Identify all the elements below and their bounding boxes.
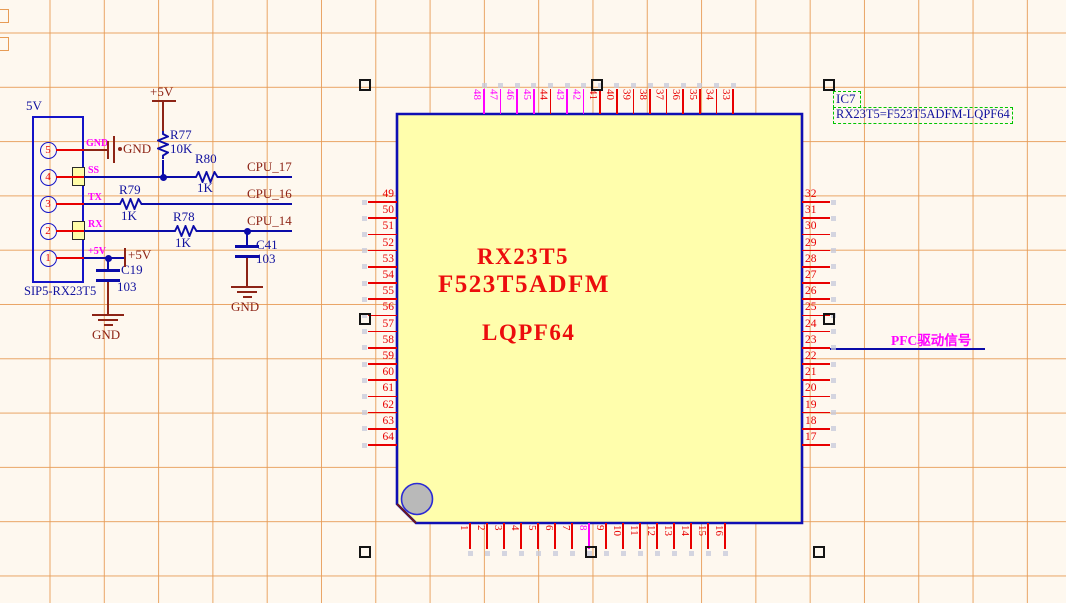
- ic-pin-number-56: 56: [368, 301, 394, 313]
- ic-pin-right-32[interactable]: [802, 201, 830, 203]
- ic-pin-number-20: 20: [805, 382, 817, 394]
- ic-pin-number-25: 25: [805, 301, 817, 313]
- ic-pin-number-16: 16: [712, 525, 725, 536]
- connector-pin-2[interactable]: 2: [40, 223, 57, 240]
- selection-handle-square[interactable]: [591, 79, 603, 91]
- ic-pin-top-46[interactable]: [516, 89, 518, 114]
- ic-body-text-line3: LQPF64: [482, 320, 575, 346]
- power-label-plus5v-top[interactable]: +5V: [150, 85, 173, 99]
- ic-pin-number-53: 53: [368, 253, 394, 265]
- ic-pin-right-23[interactable]: [802, 347, 830, 349]
- pin-hotspot-dot: [831, 394, 836, 399]
- pin-hotspot-dot: [831, 297, 836, 302]
- pin-hotspot-dot: [681, 83, 686, 88]
- ic-pin-top-42[interactable]: [583, 89, 585, 114]
- pin-hotspot-dot: [362, 216, 367, 221]
- ic-pin-number-27: 27: [805, 269, 817, 281]
- ic-pin-right-24[interactable]: [802, 331, 830, 333]
- ic-pin-right-18[interactable]: [802, 428, 830, 430]
- ic-pin-number-45: 45: [520, 89, 533, 100]
- ic-pin-number-44: 44: [536, 89, 549, 100]
- sheet-edge-marker: [0, 37, 9, 51]
- ic-pin-number-24: 24: [805, 318, 817, 330]
- ic-pin-number-26: 26: [805, 285, 817, 297]
- gnd-earth-symbol[interactable]: [92, 314, 124, 316]
- pin-hotspot-dot: [614, 83, 619, 88]
- plus5v-top-lead[interactable]: [162, 101, 164, 131]
- wire-junction: [105, 255, 112, 262]
- ic-pin-number-15: 15: [695, 525, 708, 536]
- gnd-earth-symbol[interactable]: [243, 296, 252, 298]
- pin-hotspot-dot: [548, 83, 553, 88]
- pin-hotspot-dot: [831, 378, 836, 383]
- resistor-value-r78[interactable]: 1K: [175, 236, 191, 250]
- ic-pin-left-49[interactable]: [368, 201, 397, 203]
- wire-junction: [160, 174, 167, 181]
- wire-tx[interactable]: [84, 203, 117, 205]
- ic-pin-left-58[interactable]: [368, 347, 397, 349]
- ic-pin-number-54: 54: [368, 269, 394, 281]
- ic-pin-number-31: 31: [805, 204, 817, 216]
- ic-pin-number-34: 34: [702, 89, 715, 100]
- power-label-plus5v-pin1[interactable]: +5V: [128, 248, 151, 262]
- ic-pin-top-33[interactable]: [732, 89, 734, 114]
- pin-hotspot-dot: [362, 232, 367, 237]
- ic-pin-right-21[interactable]: [802, 379, 830, 381]
- connector-pin-name-+5V: +5V: [88, 246, 106, 257]
- pin-hotspot-dot: [362, 378, 367, 383]
- ic-pin-number-6: 6: [542, 525, 555, 531]
- pin-hotspot-dot: [362, 410, 367, 415]
- capacitor-value-c19[interactable]: 103: [117, 280, 137, 294]
- pin-hotspot-dot: [498, 83, 503, 88]
- ic-body-text-line1: RX23T5: [477, 244, 569, 270]
- ic-pin-number-3: 3: [491, 525, 504, 531]
- ic-pin-top-35[interactable]: [699, 89, 701, 114]
- capacitor-plate[interactable]: [96, 279, 120, 282]
- selection-handle-square[interactable]: [585, 546, 597, 558]
- pin-hotspot-dot: [731, 83, 736, 88]
- capacitor-plate[interactable]: [235, 245, 259, 248]
- gnd-bar-lead[interactable]: [84, 149, 107, 151]
- ic-pin-left-62[interactable]: [368, 412, 397, 414]
- ic-designator[interactable]: IC7: [836, 92, 856, 106]
- pin-hotspot-dot: [831, 216, 836, 221]
- connector-pin-stub[interactable]: [56, 230, 84, 232]
- resistor-ref-r79[interactable]: R79: [119, 183, 141, 197]
- pin-hotspot-dot: [831, 410, 836, 415]
- ic-pin-number-37: 37: [653, 89, 666, 100]
- pin-hotspot-dot: [362, 264, 367, 269]
- ic-pin-number-10: 10: [610, 525, 623, 536]
- ic-pin-number-52: 52: [368, 237, 394, 249]
- gnd-earth-symbol[interactable]: [237, 291, 257, 293]
- ic-pin-number-8: 8: [576, 525, 589, 531]
- connector-pin-stub[interactable]: [56, 257, 84, 259]
- resistor-r80[interactable]: [193, 171, 221, 183]
- ic-pin-number-7: 7: [559, 525, 572, 531]
- ic-pin-left-57[interactable]: [368, 331, 397, 333]
- ic-pin-top-43[interactable]: [566, 89, 568, 114]
- ic-pin-right-31[interactable]: [802, 217, 830, 219]
- ic-pin-right-30[interactable]: [802, 234, 830, 236]
- connector-pin-stub[interactable]: [56, 176, 84, 178]
- plus5v-top-bar[interactable]: [152, 100, 176, 102]
- connector-pin-3[interactable]: 3: [40, 196, 57, 213]
- net-label-cpu16[interactable]: CPU_16: [247, 187, 292, 201]
- ic-pin-left-56[interactable]: [368, 315, 397, 317]
- ic-pin-number-49: 49: [368, 188, 394, 200]
- pin-hotspot-dot: [831, 232, 836, 237]
- ic-pin-left-51[interactable]: [368, 234, 397, 236]
- ic-pin-number-64: 64: [368, 431, 394, 443]
- pin-hotspot-dot: [831, 281, 836, 286]
- ic-pin-number-13: 13: [661, 525, 674, 536]
- net-label-pfc[interactable]: PFC驱动信号: [891, 334, 971, 349]
- connector-pin-5[interactable]: 5: [40, 142, 57, 159]
- selection-handle-square[interactable]: [359, 546, 371, 558]
- pin-hotspot-dot: [362, 329, 367, 334]
- pin-hotspot-dot: [519, 551, 524, 556]
- plus5v-pin1-bar[interactable]: [124, 248, 127, 267]
- ic-pin-left-50[interactable]: [368, 217, 397, 219]
- pin-hotspot-dot: [831, 264, 836, 269]
- ic-pin-left-63[interactable]: [368, 428, 397, 430]
- ic-pin-number-4: 4: [508, 525, 521, 531]
- connector-pin-name-TX: TX: [88, 192, 102, 203]
- ic-pin-number-32: 32: [805, 188, 817, 200]
- ic-pin-number-46: 46: [503, 89, 516, 100]
- pin-hotspot-dot: [831, 248, 836, 253]
- ic-pin-number-19: 19: [805, 399, 817, 411]
- pin-hotspot-dot: [723, 551, 728, 556]
- gnd-bar-2[interactable]: [113, 136, 115, 163]
- pin-hotspot-dot: [638, 551, 643, 556]
- pin-hotspot-dot: [831, 426, 836, 431]
- ic-pin-number-21: 21: [805, 366, 817, 378]
- ic-pin-number-61: 61: [368, 382, 394, 394]
- pin-hotspot-dot: [362, 443, 367, 448]
- pin-hotspot-dot: [362, 362, 367, 367]
- pin-hotspot-dot: [831, 345, 836, 350]
- sheet-edge-marker: [0, 9, 9, 23]
- ic-pin-number-1: 1: [457, 525, 470, 531]
- ic-pin-top-39[interactable]: [633, 89, 635, 114]
- pin-hotspot-dot: [531, 83, 536, 88]
- ic-pin-number-11: 11: [627, 525, 640, 536]
- pin-hotspot-dot: [831, 362, 836, 367]
- resistor-value-r80[interactable]: 1K: [197, 181, 213, 195]
- connector-part-label[interactable]: SIP5-RX23T5: [24, 285, 96, 299]
- c41-gnd-lead[interactable]: [246, 256, 248, 287]
- capacitor-plate[interactable]: [96, 269, 120, 272]
- power-label-gnd-c19[interactable]: GND: [92, 328, 120, 342]
- pin-hotspot-dot: [362, 394, 367, 399]
- ic-pin-right-29[interactable]: [802, 250, 830, 252]
- pin-hotspot-dot: [515, 83, 520, 88]
- capacitor-plate[interactable]: [235, 255, 259, 258]
- wire-junction: [244, 228, 251, 235]
- ic-pin-right-17[interactable]: [802, 444, 830, 446]
- ic-pin-right-28[interactable]: [802, 266, 830, 268]
- ic-body-text-line2: F523T5ADFM: [438, 271, 610, 299]
- pin-hotspot-dot: [502, 551, 507, 556]
- ic-pin-top-48[interactable]: [483, 89, 485, 114]
- resistor-r78[interactable]: [172, 225, 200, 237]
- pin-hotspot-dot: [482, 83, 487, 88]
- gnd-earth-symbol[interactable]: [104, 324, 113, 326]
- ic-pin-left-55[interactable]: [368, 298, 397, 300]
- ic-pin-number-35: 35: [686, 89, 699, 100]
- wire-rx[interactable]: [84, 230, 172, 232]
- connector-pin-4[interactable]: 4: [40, 169, 57, 186]
- pin-hotspot-dot: [485, 551, 490, 556]
- ic-pin-number-38: 38: [636, 89, 649, 100]
- pin1-indicator-dot: [402, 484, 433, 515]
- ic-pin-number-57: 57: [368, 318, 394, 330]
- pin-hotspot-dot: [362, 281, 367, 286]
- gnd-earth-symbol[interactable]: [231, 286, 263, 288]
- ic-pin-top-37[interactable]: [666, 89, 668, 114]
- ic-pin-left-52[interactable]: [368, 250, 397, 252]
- ic-pin-top-45[interactable]: [533, 89, 535, 114]
- ic-pin-number-42: 42: [570, 89, 583, 100]
- ic-pin-top-34[interactable]: [716, 89, 718, 114]
- wire-ss[interactable]: [84, 176, 193, 178]
- ic-pin-top-44[interactable]: [550, 89, 552, 114]
- pin-hotspot-dot: [362, 426, 367, 431]
- ic-pin-right-22[interactable]: [802, 363, 830, 365]
- ic-pin-right-19[interactable]: [802, 412, 830, 414]
- ic-pin-number-12: 12: [644, 525, 657, 536]
- selection-handle-square[interactable]: [359, 313, 371, 325]
- ic-pin-number-28: 28: [805, 253, 817, 265]
- ic-pin-number-18: 18: [805, 415, 817, 427]
- pin-hotspot-dot: [621, 551, 626, 556]
- ic-pin-number-47: 47: [487, 89, 500, 100]
- gnd-earth-symbol[interactable]: [98, 319, 118, 321]
- ic-pin-top-40[interactable]: [616, 89, 618, 114]
- pin-hotspot-dot: [581, 83, 586, 88]
- ic-pin-left-53[interactable]: [368, 266, 397, 268]
- resistor-r79[interactable]: [117, 198, 145, 210]
- connector-pin-1[interactable]: 1: [40, 250, 57, 267]
- connector-pin-name-GND: GND: [86, 138, 108, 149]
- net-label-cpu17[interactable]: CPU_17: [247, 160, 292, 174]
- ic-pin-number-9: 9: [593, 525, 606, 531]
- resistor-r77[interactable]: [157, 131, 169, 159]
- pin-hotspot-dot: [831, 443, 836, 448]
- pin-hotspot-dot: [536, 551, 541, 556]
- ic-pin-number-63: 63: [368, 415, 394, 427]
- ic-pin-number-36: 36: [669, 89, 682, 100]
- ic-pin-number-55: 55: [368, 285, 394, 297]
- c19-gnd-lead[interactable]: [107, 280, 109, 315]
- ic-pin-top-41[interactable]: [599, 89, 601, 114]
- pin-hotspot-dot: [672, 551, 677, 556]
- ic-pin-left-60[interactable]: [368, 379, 397, 381]
- connector-pin-stub[interactable]: [56, 203, 84, 205]
- pin-hotspot-dot: [706, 551, 711, 556]
- wire-cpu17[interactable]: [221, 176, 292, 178]
- resistor-value-r77[interactable]: 10K: [170, 142, 192, 156]
- ic-pin-left-54[interactable]: [368, 282, 397, 284]
- ic-pin-number-62: 62: [368, 399, 394, 411]
- ic-pin-number-29: 29: [805, 237, 817, 249]
- gnd-bar-1[interactable]: [107, 141, 109, 159]
- pin-hotspot-dot: [570, 551, 575, 556]
- pin-hotspot-dot: [362, 200, 367, 205]
- selection-handle-square[interactable]: [823, 79, 835, 91]
- ic-pin-number-23: 23: [805, 334, 817, 346]
- selection-handle-square[interactable]: [813, 546, 825, 558]
- pin-hotspot-dot: [362, 345, 367, 350]
- pin-hotspot-dot: [553, 551, 558, 556]
- pin-hotspot-dot: [697, 83, 702, 88]
- connector-pin-stub[interactable]: [56, 149, 84, 151]
- ic-pin-top-47[interactable]: [500, 89, 502, 114]
- wire-pfc[interactable]: [830, 348, 985, 350]
- ic-comment[interactable]: RX23T5=F523T5ADFM-LQPF64: [836, 108, 1010, 122]
- ic-pin-number-5: 5: [525, 525, 538, 531]
- pin-hotspot-dot: [714, 83, 719, 88]
- ic-pin-number-51: 51: [368, 220, 394, 232]
- selection-handle-square[interactable]: [359, 79, 371, 91]
- schematic-canvas[interactable]: RX23T5 F523T5ADFM LQPF64 IC7 RX23T5=F523…: [0, 0, 1066, 603]
- wire-cpu16[interactable]: [145, 203, 292, 205]
- pin-hotspot-dot: [362, 297, 367, 302]
- ic-pin-number-43: 43: [553, 89, 566, 100]
- pin-hotspot-dot: [831, 329, 836, 334]
- resistor-ref-r80[interactable]: R80: [195, 152, 217, 166]
- ic-pin-right-20[interactable]: [802, 396, 830, 398]
- pin-hotspot-dot: [565, 83, 570, 88]
- power-label-gnd-c41[interactable]: GND: [231, 300, 259, 314]
- pin-hotspot-dot: [664, 83, 669, 88]
- ic-pin-number-22: 22: [805, 350, 817, 362]
- ic-pin-right-26[interactable]: [802, 298, 830, 300]
- connector-power-label[interactable]: 5V: [26, 99, 42, 113]
- ic-pin-number-39: 39: [619, 89, 632, 100]
- ic-pin-left-59[interactable]: [368, 363, 397, 365]
- ic-pin-left-61[interactable]: [368, 396, 397, 398]
- pin-hotspot-dot: [655, 551, 660, 556]
- ic-pin-number-30: 30: [805, 220, 817, 232]
- pin-hotspot-dot: [362, 248, 367, 253]
- ic-pin-number-2: 2: [474, 525, 487, 531]
- selection-handle-square[interactable]: [823, 313, 835, 325]
- ic-pin-number-59: 59: [368, 350, 394, 362]
- resistor-value-r79[interactable]: 1K: [121, 209, 137, 223]
- connector-pin-name-RX: RX: [88, 219, 102, 230]
- ic-pin-number-17: 17: [805, 431, 817, 443]
- ic-pin-number-50: 50: [368, 204, 394, 216]
- ic-pin-number-33: 33: [719, 89, 732, 100]
- pin-hotspot-dot: [468, 551, 473, 556]
- power-label-gnd-bar[interactable]: GND: [123, 142, 151, 156]
- ic-pin-number-58: 58: [368, 334, 394, 346]
- resistor-ref-r78[interactable]: R78: [173, 210, 195, 224]
- gnd-bar-dot: [118, 147, 122, 151]
- ic-pin-left-64[interactable]: [368, 444, 397, 446]
- ic-pin-number-40: 40: [603, 89, 616, 100]
- ic-pin-number-60: 60: [368, 366, 394, 378]
- ic-body[interactable]: [395, 112, 805, 526]
- ic-pin-number-14: 14: [678, 525, 691, 536]
- pin-hotspot-dot: [831, 200, 836, 205]
- pin-hotspot-dot: [648, 83, 653, 88]
- net-label-cpu14[interactable]: CPU_14: [247, 214, 292, 228]
- ic-pin-top-36[interactable]: [682, 89, 684, 114]
- pin-hotspot-dot: [689, 551, 694, 556]
- connector-pin-name-SS: SS: [88, 165, 99, 176]
- ic-pin-right-27[interactable]: [802, 282, 830, 284]
- pin-hotspot-dot: [631, 83, 636, 88]
- ic-pin-top-38[interactable]: [649, 89, 651, 114]
- ic-pin-number-48: 48: [470, 89, 483, 100]
- pin-hotspot-dot: [604, 551, 609, 556]
